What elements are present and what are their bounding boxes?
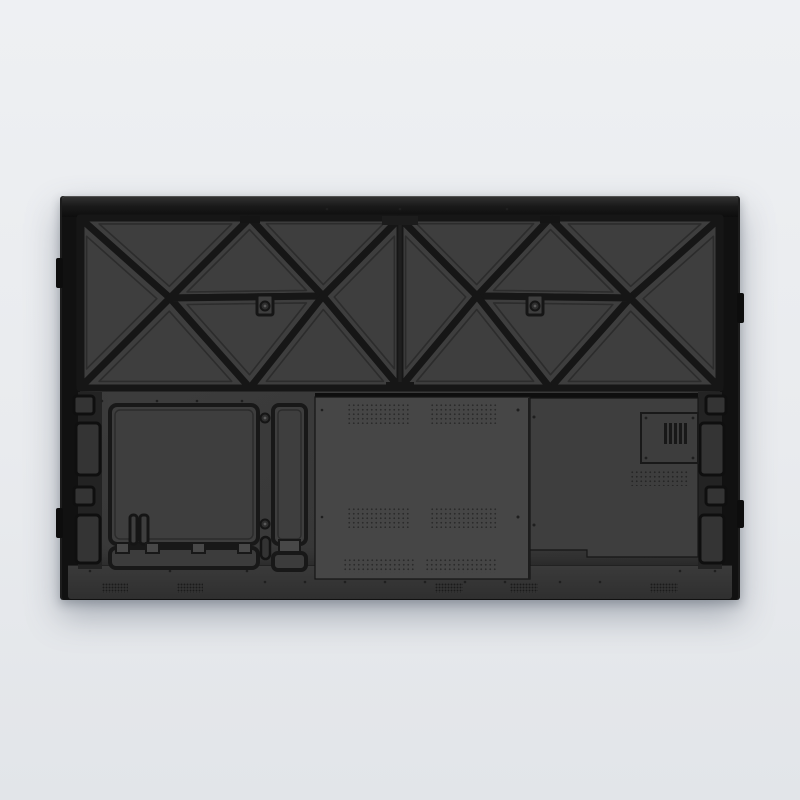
speaker-grille bbox=[177, 583, 203, 593]
perforation-cluster bbox=[343, 558, 415, 573]
handle-cutout bbox=[700, 423, 724, 475]
oval-slot bbox=[261, 537, 270, 559]
lower-left-zone bbox=[74, 392, 306, 570]
handle-cutout bbox=[74, 396, 94, 414]
perforation-cluster bbox=[430, 403, 497, 424]
bottom-rail-left bbox=[110, 548, 258, 568]
perforation-cluster bbox=[425, 558, 497, 573]
handle-cutout bbox=[76, 515, 100, 563]
pin-slot bbox=[140, 515, 148, 544]
perforation-cluster bbox=[347, 403, 410, 424]
lower-right-zone bbox=[698, 392, 726, 569]
speaker-grille bbox=[510, 583, 538, 593]
panel-detail-art bbox=[60, 196, 740, 600]
speaker-grille bbox=[650, 583, 678, 593]
perforation-cluster bbox=[347, 507, 410, 528]
handle-cutout bbox=[74, 487, 94, 505]
speaker-grille bbox=[435, 583, 463, 593]
speaker-grille bbox=[102, 583, 128, 593]
vent-module bbox=[641, 413, 698, 463]
vesa-screw-boss-left bbox=[257, 295, 273, 315]
main-electronics-cover bbox=[315, 397, 530, 579]
handle-cutout bbox=[706, 487, 726, 505]
perforation-cluster bbox=[430, 507, 497, 528]
display-rear-panel bbox=[60, 196, 740, 600]
handle-cutout bbox=[706, 396, 726, 414]
handle-cutout bbox=[76, 423, 100, 475]
perforation-cluster bbox=[630, 470, 688, 486]
vesa-screw-boss-right bbox=[527, 295, 543, 315]
handle-cutout bbox=[700, 515, 724, 563]
product-photo-stage bbox=[0, 0, 800, 800]
pin-slot bbox=[130, 515, 137, 544]
